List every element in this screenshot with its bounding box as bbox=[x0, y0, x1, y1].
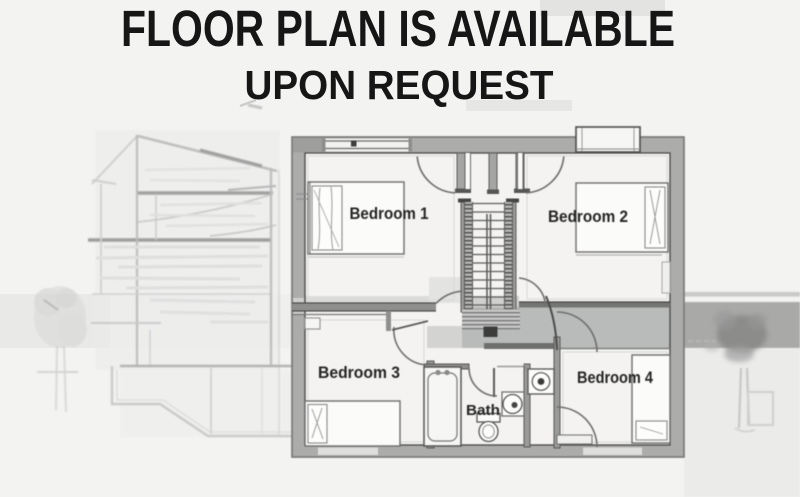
svg-text:Bedroom 2: Bedroom 2 bbox=[548, 208, 628, 226]
svg-text:UPON REQUEST: UPON REQUEST bbox=[245, 62, 554, 108]
svg-text:Bedroom 1: Bedroom 1 bbox=[350, 205, 429, 223]
svg-text:Bedroom 3: Bedroom 3 bbox=[318, 364, 400, 382]
svg-text:FLOOR PLAN IS AVAILABLE: FLOOR PLAN IS AVAILABLE bbox=[121, 0, 675, 57]
svg-text:Bedroom 4: Bedroom 4 bbox=[577, 369, 654, 387]
svg-text:Bath: Bath bbox=[466, 403, 500, 419]
